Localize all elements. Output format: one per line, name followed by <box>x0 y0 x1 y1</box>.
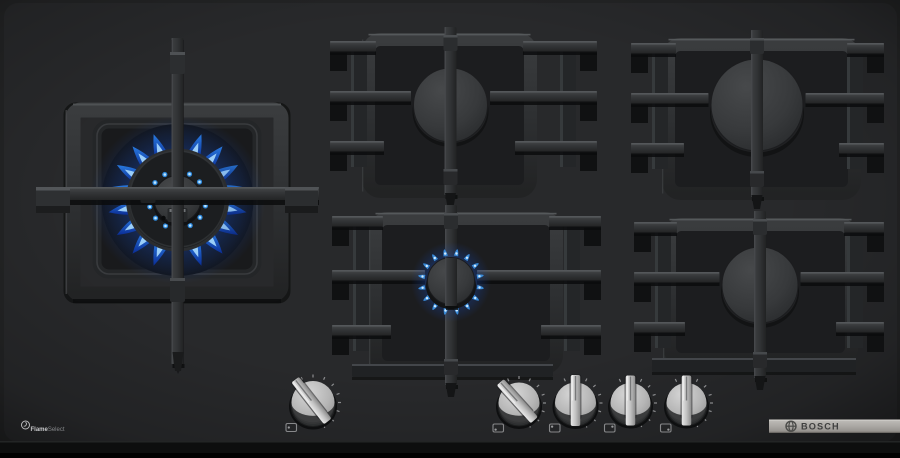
svg-text:BOSCH: BOSCH <box>801 422 840 432</box>
svg-text:FlameSelect: FlameSelect <box>31 427 65 433</box>
